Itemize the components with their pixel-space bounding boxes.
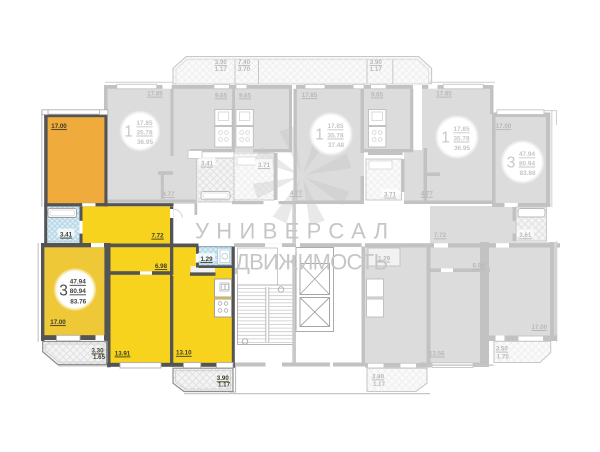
svg-text:4.77: 4.77 bbox=[290, 190, 303, 197]
svg-text:17.00: 17.00 bbox=[50, 319, 66, 326]
svg-text:17.85: 17.85 bbox=[454, 126, 470, 133]
svg-text:6.98: 6.98 bbox=[155, 263, 168, 270]
svg-text:1.75: 1.75 bbox=[497, 354, 510, 361]
svg-text:3.71: 3.71 bbox=[384, 191, 397, 198]
svg-text:3.90: 3.90 bbox=[215, 59, 228, 66]
svg-text:80.94: 80.94 bbox=[70, 288, 86, 295]
svg-text:9.65: 9.65 bbox=[239, 92, 252, 99]
svg-text:1.17: 1.17 bbox=[373, 381, 386, 388]
svg-text:УНИВЕРСАЛ: УНИВЕРСАЛ bbox=[195, 219, 388, 244]
svg-text:3.70: 3.70 bbox=[238, 66, 251, 73]
svg-text:9.65: 9.65 bbox=[215, 92, 228, 99]
svg-text:3.41: 3.41 bbox=[201, 161, 214, 168]
svg-text:47.94: 47.94 bbox=[519, 151, 535, 158]
svg-text:7.72: 7.72 bbox=[434, 232, 447, 239]
svg-text:4.77: 4.77 bbox=[421, 191, 434, 198]
svg-text:3.71: 3.71 bbox=[258, 162, 271, 169]
svg-text:17.85: 17.85 bbox=[328, 123, 344, 130]
svg-text:17.00: 17.00 bbox=[51, 123, 67, 130]
svg-text:17.85: 17.85 bbox=[137, 120, 153, 127]
svg-text:36.95: 36.95 bbox=[137, 139, 153, 146]
svg-text:35.78: 35.78 bbox=[454, 135, 470, 142]
svg-text:1: 1 bbox=[124, 124, 133, 141]
svg-text:9.65: 9.65 bbox=[371, 91, 384, 98]
svg-text:1.17: 1.17 bbox=[218, 382, 231, 389]
svg-text:17.85: 17.85 bbox=[147, 91, 163, 98]
svg-text:1: 1 bbox=[315, 127, 324, 144]
svg-text:7.40: 7.40 bbox=[238, 59, 251, 66]
svg-text:35.78: 35.78 bbox=[137, 129, 153, 136]
svg-text:80.94: 80.94 bbox=[519, 160, 535, 167]
svg-text:7.72: 7.72 bbox=[151, 233, 164, 240]
svg-text:1.17: 1.17 bbox=[215, 66, 228, 73]
svg-text:1.65: 1.65 bbox=[93, 354, 106, 361]
svg-text:83.86: 83.86 bbox=[520, 170, 536, 177]
svg-text:17.00: 17.00 bbox=[532, 324, 548, 331]
svg-text:37.48: 37.48 bbox=[328, 142, 344, 149]
svg-text:3.90: 3.90 bbox=[370, 59, 383, 66]
svg-text:1.29: 1.29 bbox=[200, 256, 213, 263]
svg-text:1.17: 1.17 bbox=[370, 66, 383, 73]
svg-text:6.98: 6.98 bbox=[472, 263, 485, 270]
svg-text:13.91: 13.91 bbox=[115, 350, 131, 357]
svg-text:3.61: 3.61 bbox=[519, 232, 532, 239]
svg-text:17.85: 17.85 bbox=[302, 92, 318, 99]
svg-text:3: 3 bbox=[59, 283, 68, 300]
svg-text:1: 1 bbox=[441, 130, 450, 147]
svg-text:13.10: 13.10 bbox=[176, 350, 192, 357]
svg-text:3.50: 3.50 bbox=[496, 346, 509, 353]
svg-text:3.90: 3.90 bbox=[372, 373, 385, 380]
svg-text:47.94: 47.94 bbox=[70, 279, 86, 286]
svg-text:3: 3 bbox=[507, 155, 516, 172]
svg-text:17.85: 17.85 bbox=[436, 91, 452, 98]
svg-text:17.00: 17.00 bbox=[496, 123, 512, 130]
svg-text:3.41: 3.41 bbox=[60, 232, 73, 239]
svg-text:36.95: 36.95 bbox=[454, 145, 470, 152]
svg-text:35.78: 35.78 bbox=[328, 132, 344, 139]
svg-text:13.56: 13.56 bbox=[429, 350, 445, 357]
svg-text:83.76: 83.76 bbox=[70, 299, 86, 306]
svg-text:4.77: 4.77 bbox=[162, 191, 175, 198]
